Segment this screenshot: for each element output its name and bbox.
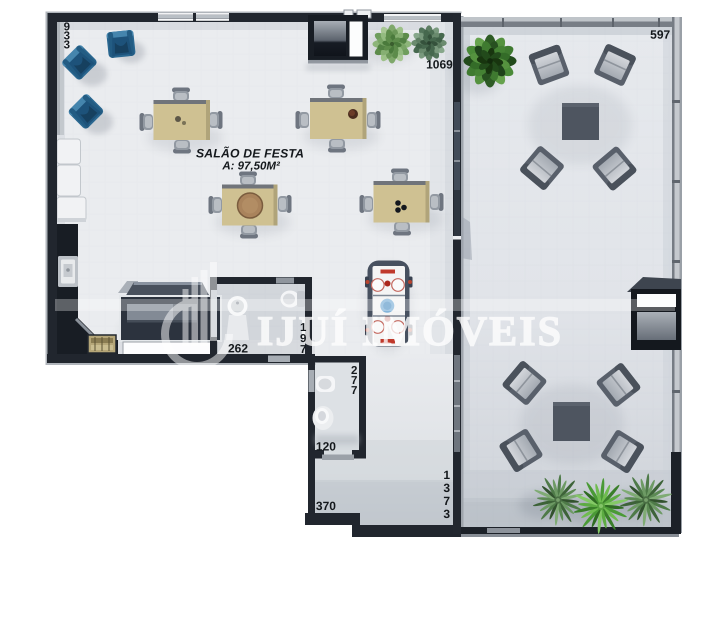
svg-text:3: 3 [443, 507, 450, 521]
svg-text:1069: 1069 [426, 58, 453, 72]
svg-text:3: 3 [64, 39, 70, 51]
svg-text:1: 1 [443, 468, 450, 482]
svg-text:262: 262 [228, 341, 248, 355]
svg-text:7: 7 [443, 494, 450, 508]
svg-text:3: 3 [443, 481, 450, 495]
svg-text:A: 97,50M²: A: 97,50M² [221, 160, 281, 172]
svg-text:597: 597 [650, 28, 670, 42]
svg-text:370: 370 [316, 499, 336, 513]
svg-text:120: 120 [316, 439, 336, 453]
svg-text:SALÃO DE FESTA: SALÃO DE FESTA [196, 145, 304, 160]
svg-text:7: 7 [300, 344, 306, 356]
svg-text:7: 7 [351, 385, 357, 397]
